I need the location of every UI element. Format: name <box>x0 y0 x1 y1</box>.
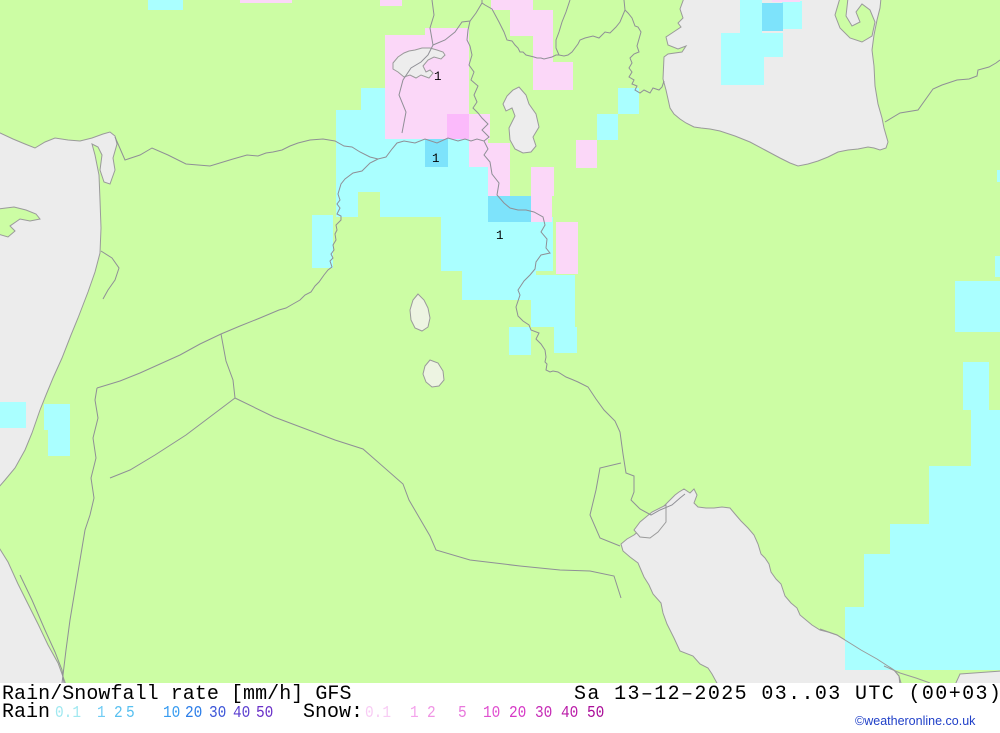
svg-text:1: 1 <box>434 70 442 84</box>
svg-text:1: 1 <box>432 152 440 166</box>
svg-text:1: 1 <box>496 229 504 243</box>
